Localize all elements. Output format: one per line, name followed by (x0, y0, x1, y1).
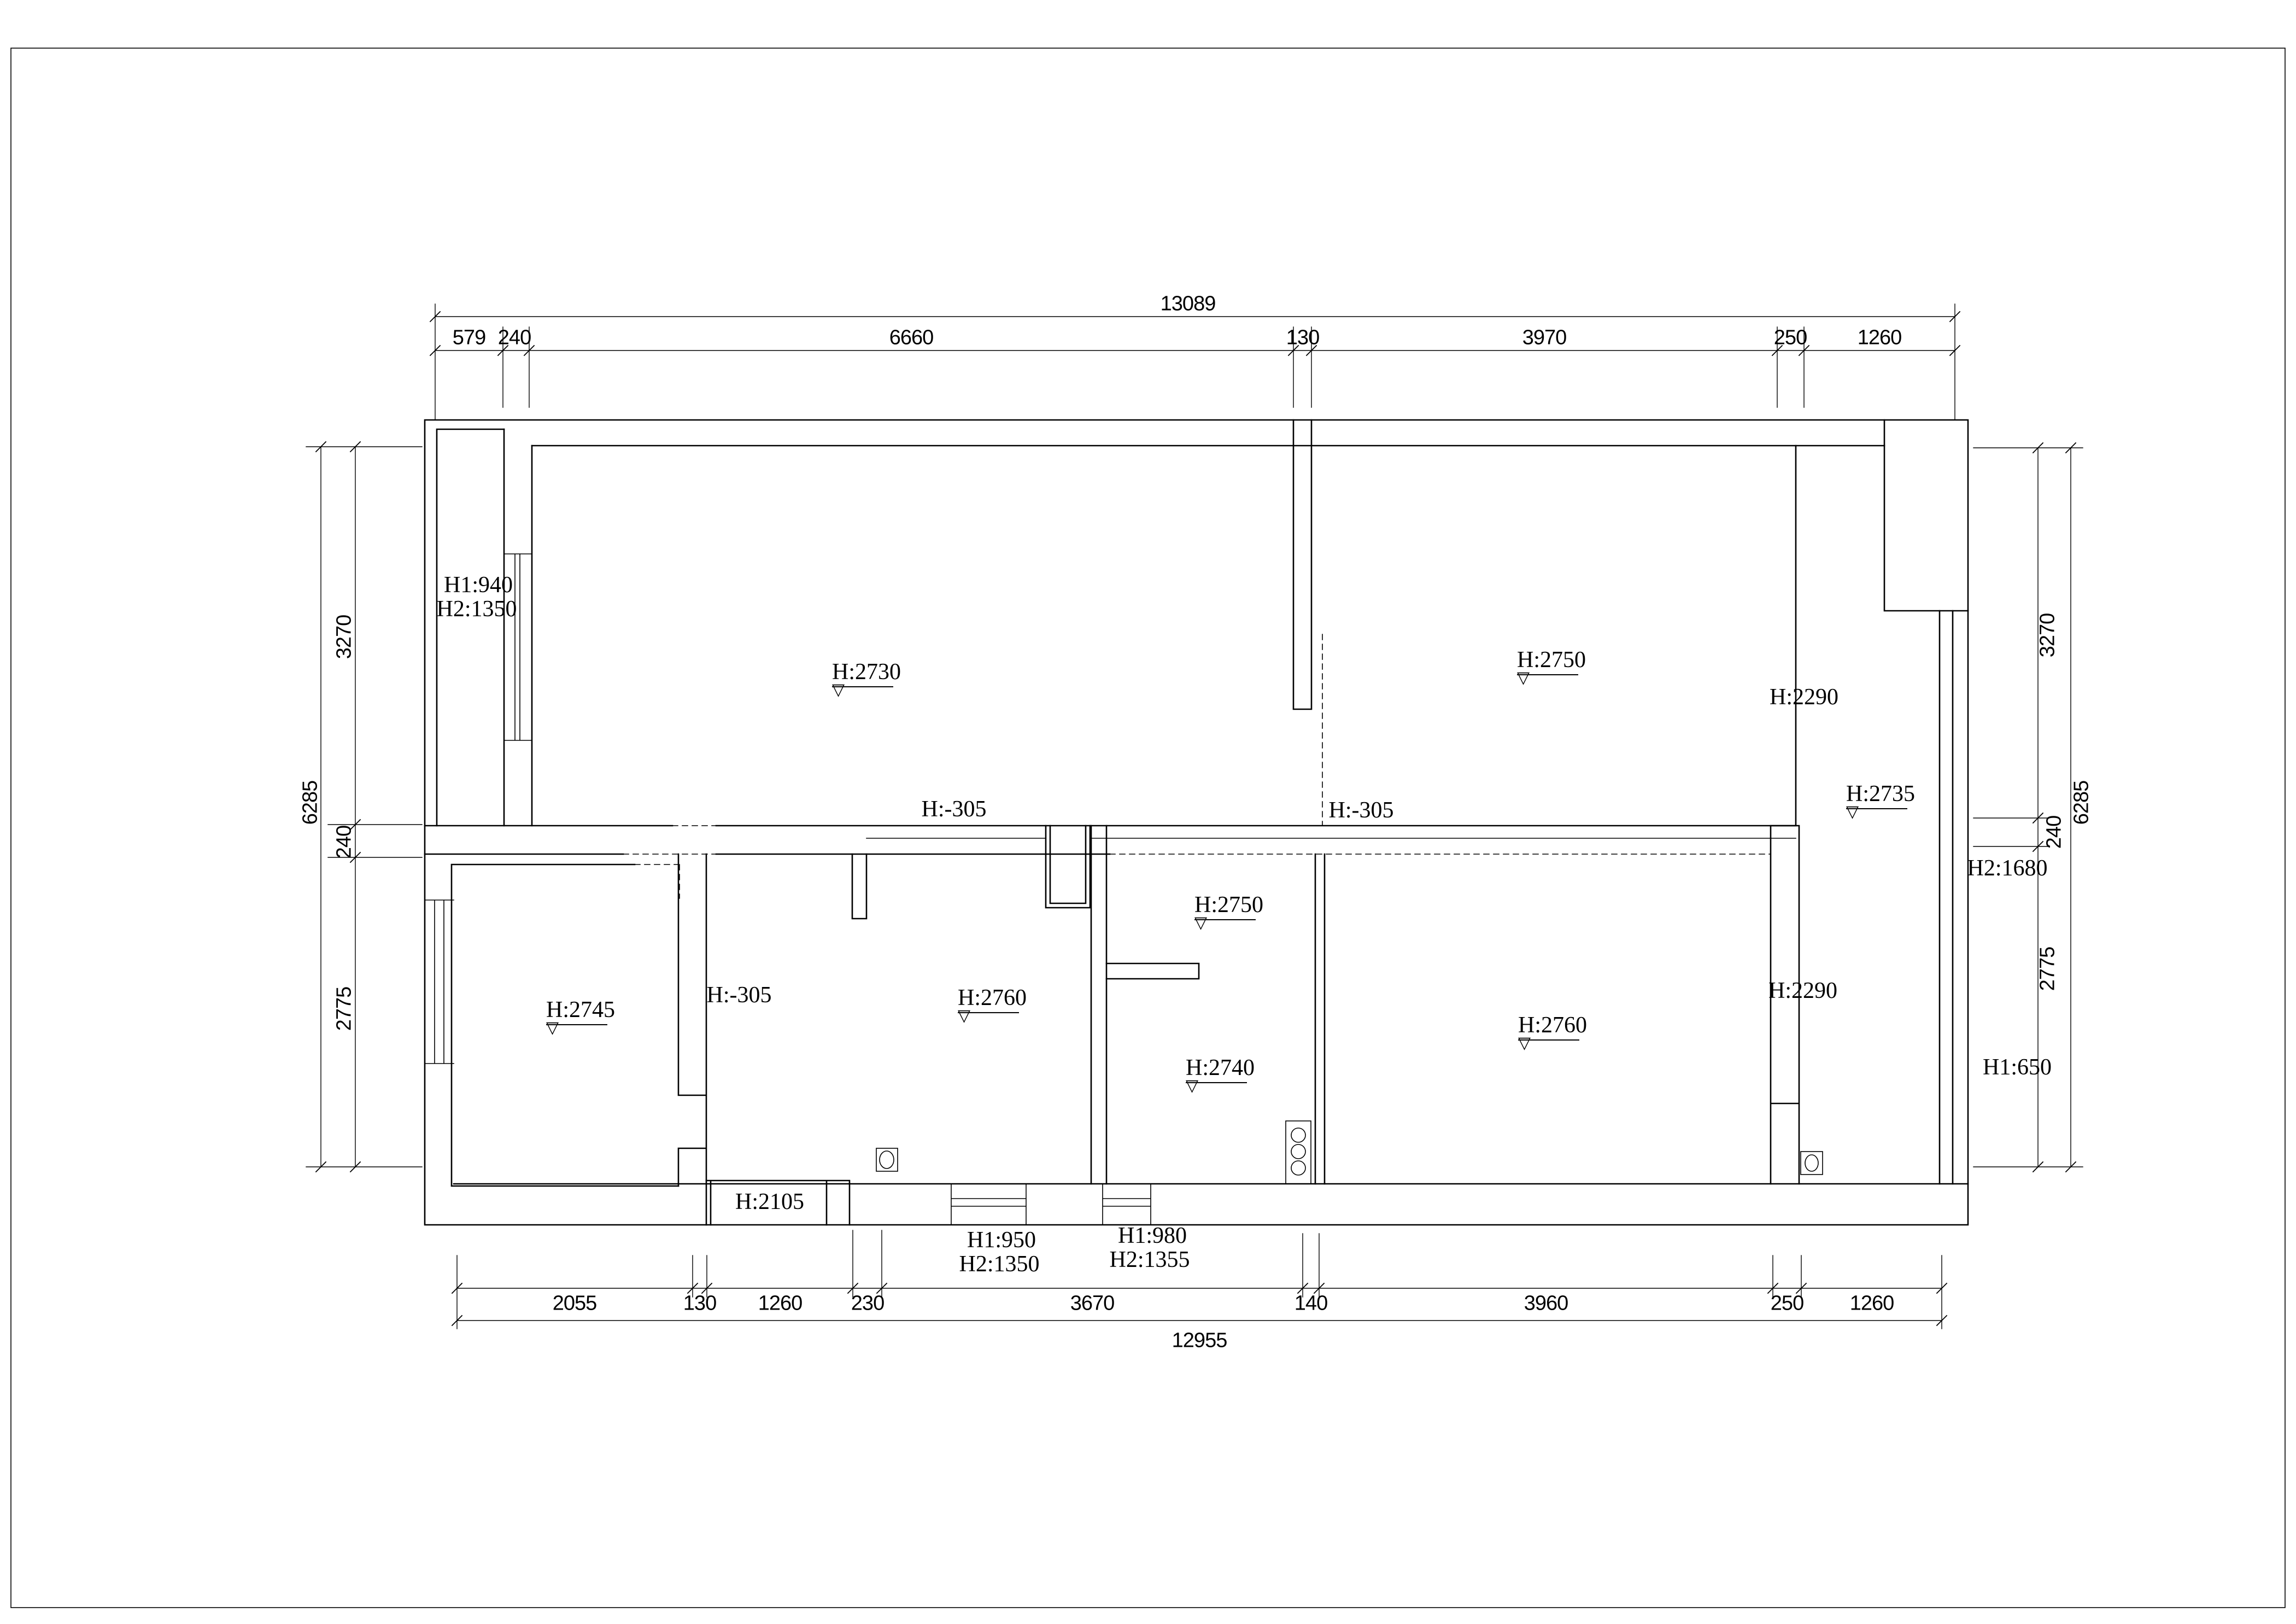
dimension-label: 1260 (1850, 1292, 1894, 1316)
room-height-label-text: H2:1350 (437, 597, 517, 621)
room-height-label: H:2760▽ (1518, 1013, 1587, 1041)
room-height-label: H2:1350 (959, 1252, 1040, 1276)
elevation-marker-icon: ▽ (958, 1008, 970, 1024)
dimension-label: 250 (1771, 1292, 1803, 1316)
hidden-lines (623, 634, 1771, 898)
stove-symbol (876, 1148, 898, 1171)
wall-lines (425, 420, 1968, 1225)
room-height-label-text: H1:940 (444, 573, 513, 597)
room-height-label-text: H1:950 (967, 1228, 1036, 1252)
room-height-label: H:2760▽ (958, 986, 1027, 1013)
dimension-label: 6285 (2070, 781, 2094, 825)
dimension-label: 2775 (2036, 947, 2060, 991)
floor-drain-symbol (1801, 1152, 1823, 1175)
room-height-label: H1:650 (1983, 1055, 2052, 1079)
dimension-label: 1260 (1858, 326, 1902, 350)
room-height-label-text: H:-305 (922, 797, 987, 821)
dimension-label: 2055 (553, 1292, 597, 1316)
room-height-label: H:-305 (707, 983, 772, 1007)
dimension-label: 3960 (1524, 1292, 1568, 1316)
room-height-label: H:2105 (735, 1190, 804, 1214)
dimension-label: 130 (1286, 326, 1319, 350)
room-height-label: H1:950 (967, 1228, 1036, 1252)
dimension-label: 13089 (1161, 293, 1216, 316)
dimension-ticks (316, 312, 2076, 1325)
elevation-marker-line: ▽ (1517, 674, 1578, 675)
room-height-label: H:2750▽ (1517, 648, 1586, 675)
room-height-label-text: H2:1350 (959, 1252, 1040, 1276)
dimension-label: 250 (1774, 326, 1807, 350)
room-height-label: H:-305 (922, 797, 987, 821)
dimension-label: 6660 (889, 326, 934, 350)
elevation-marker-line: ▽ (546, 1024, 607, 1025)
room-height-label-text: H1:650 (1983, 1055, 2052, 1079)
dimension-label: 3270 (333, 615, 356, 659)
elevation-marker-icon: ▽ (1194, 915, 1207, 931)
room-height-label-text: H1:980 (1118, 1224, 1187, 1248)
room-height-label: H:2745▽ (546, 998, 615, 1025)
dimension-label: 579 (453, 326, 485, 350)
dimension-label: 140 (1295, 1292, 1327, 1316)
dimension-label: 230 (851, 1292, 884, 1316)
room-height-label: H:2290 (1768, 979, 1837, 1003)
room-height-label: H2:1350 (437, 597, 517, 621)
elevation-marker-line: ▽ (1846, 808, 1907, 809)
room-height-label: H:2290 (1770, 685, 1838, 709)
room-height-label-text: H:-305 (707, 983, 772, 1007)
room-height-label-text: H:-305 (1329, 798, 1394, 822)
room-height-label: H:2750▽ (1194, 893, 1263, 920)
dimension-label: 6285 (299, 781, 323, 825)
water-riser-symbol (1286, 1121, 1311, 1184)
dimension-label: 3270 (2036, 614, 2060, 658)
room-height-label: H:2735▽ (1846, 782, 1915, 809)
room-height-label-text: H:2105 (735, 1190, 804, 1214)
room-height-label-text: H:2290 (1770, 685, 1838, 709)
elevation-marker-icon: ▽ (1846, 804, 1859, 820)
room-height-label: H:-305 (1329, 798, 1394, 822)
elevation-marker-icon: ▽ (1517, 670, 1530, 686)
elevation-marker-icon: ▽ (546, 1020, 559, 1036)
room-height-label: H:2730▽ (832, 660, 901, 687)
room-height-label: H2:1355 (1110, 1248, 1190, 1272)
room-height-label: H1:940 (444, 573, 513, 597)
elevation-marker-line: ▽ (832, 686, 893, 687)
room-height-label: H2:1680 (1967, 856, 2048, 880)
floor-plan-drawing (0, 0, 2296, 1624)
room-height-label-text: H:2290 (1768, 979, 1837, 1003)
dimension-label: 240 (498, 326, 531, 350)
elevation-marker-icon: ▽ (1186, 1078, 1198, 1094)
room-height-label-text: H2:1355 (1110, 1248, 1190, 1272)
dimension-label: 3670 (1070, 1292, 1115, 1316)
window-and-fixture-lines (425, 554, 1823, 1225)
floor-plan-sheet: H1:940H2:1350H:2730▽H:-305H:-305H:2750▽H… (0, 0, 2296, 1624)
dimension-lines (306, 304, 2083, 1329)
dimension-label: 240 (2043, 816, 2066, 849)
room-height-label-text: H2:1680 (1967, 856, 2048, 880)
elevation-marker-line: ▽ (1186, 1082, 1247, 1083)
dimension-label: 12955 (1172, 1329, 1227, 1353)
dimension-label: 1260 (758, 1292, 803, 1316)
dimension-label: 3970 (1522, 326, 1567, 350)
dimension-label: 240 (333, 826, 356, 858)
dimension-label: 2775 (333, 987, 356, 1031)
dimension-label: 130 (683, 1292, 716, 1316)
elevation-marker-line: ▽ (1518, 1039, 1579, 1041)
elevation-marker-line: ▽ (1194, 919, 1256, 920)
room-height-label: H:2740▽ (1186, 1056, 1255, 1083)
elevation-marker-icon: ▽ (832, 682, 845, 698)
elevation-marker-line: ▽ (958, 1012, 1019, 1013)
elevation-marker-icon: ▽ (1518, 1035, 1531, 1051)
room-height-label: H1:980 (1118, 1224, 1187, 1248)
